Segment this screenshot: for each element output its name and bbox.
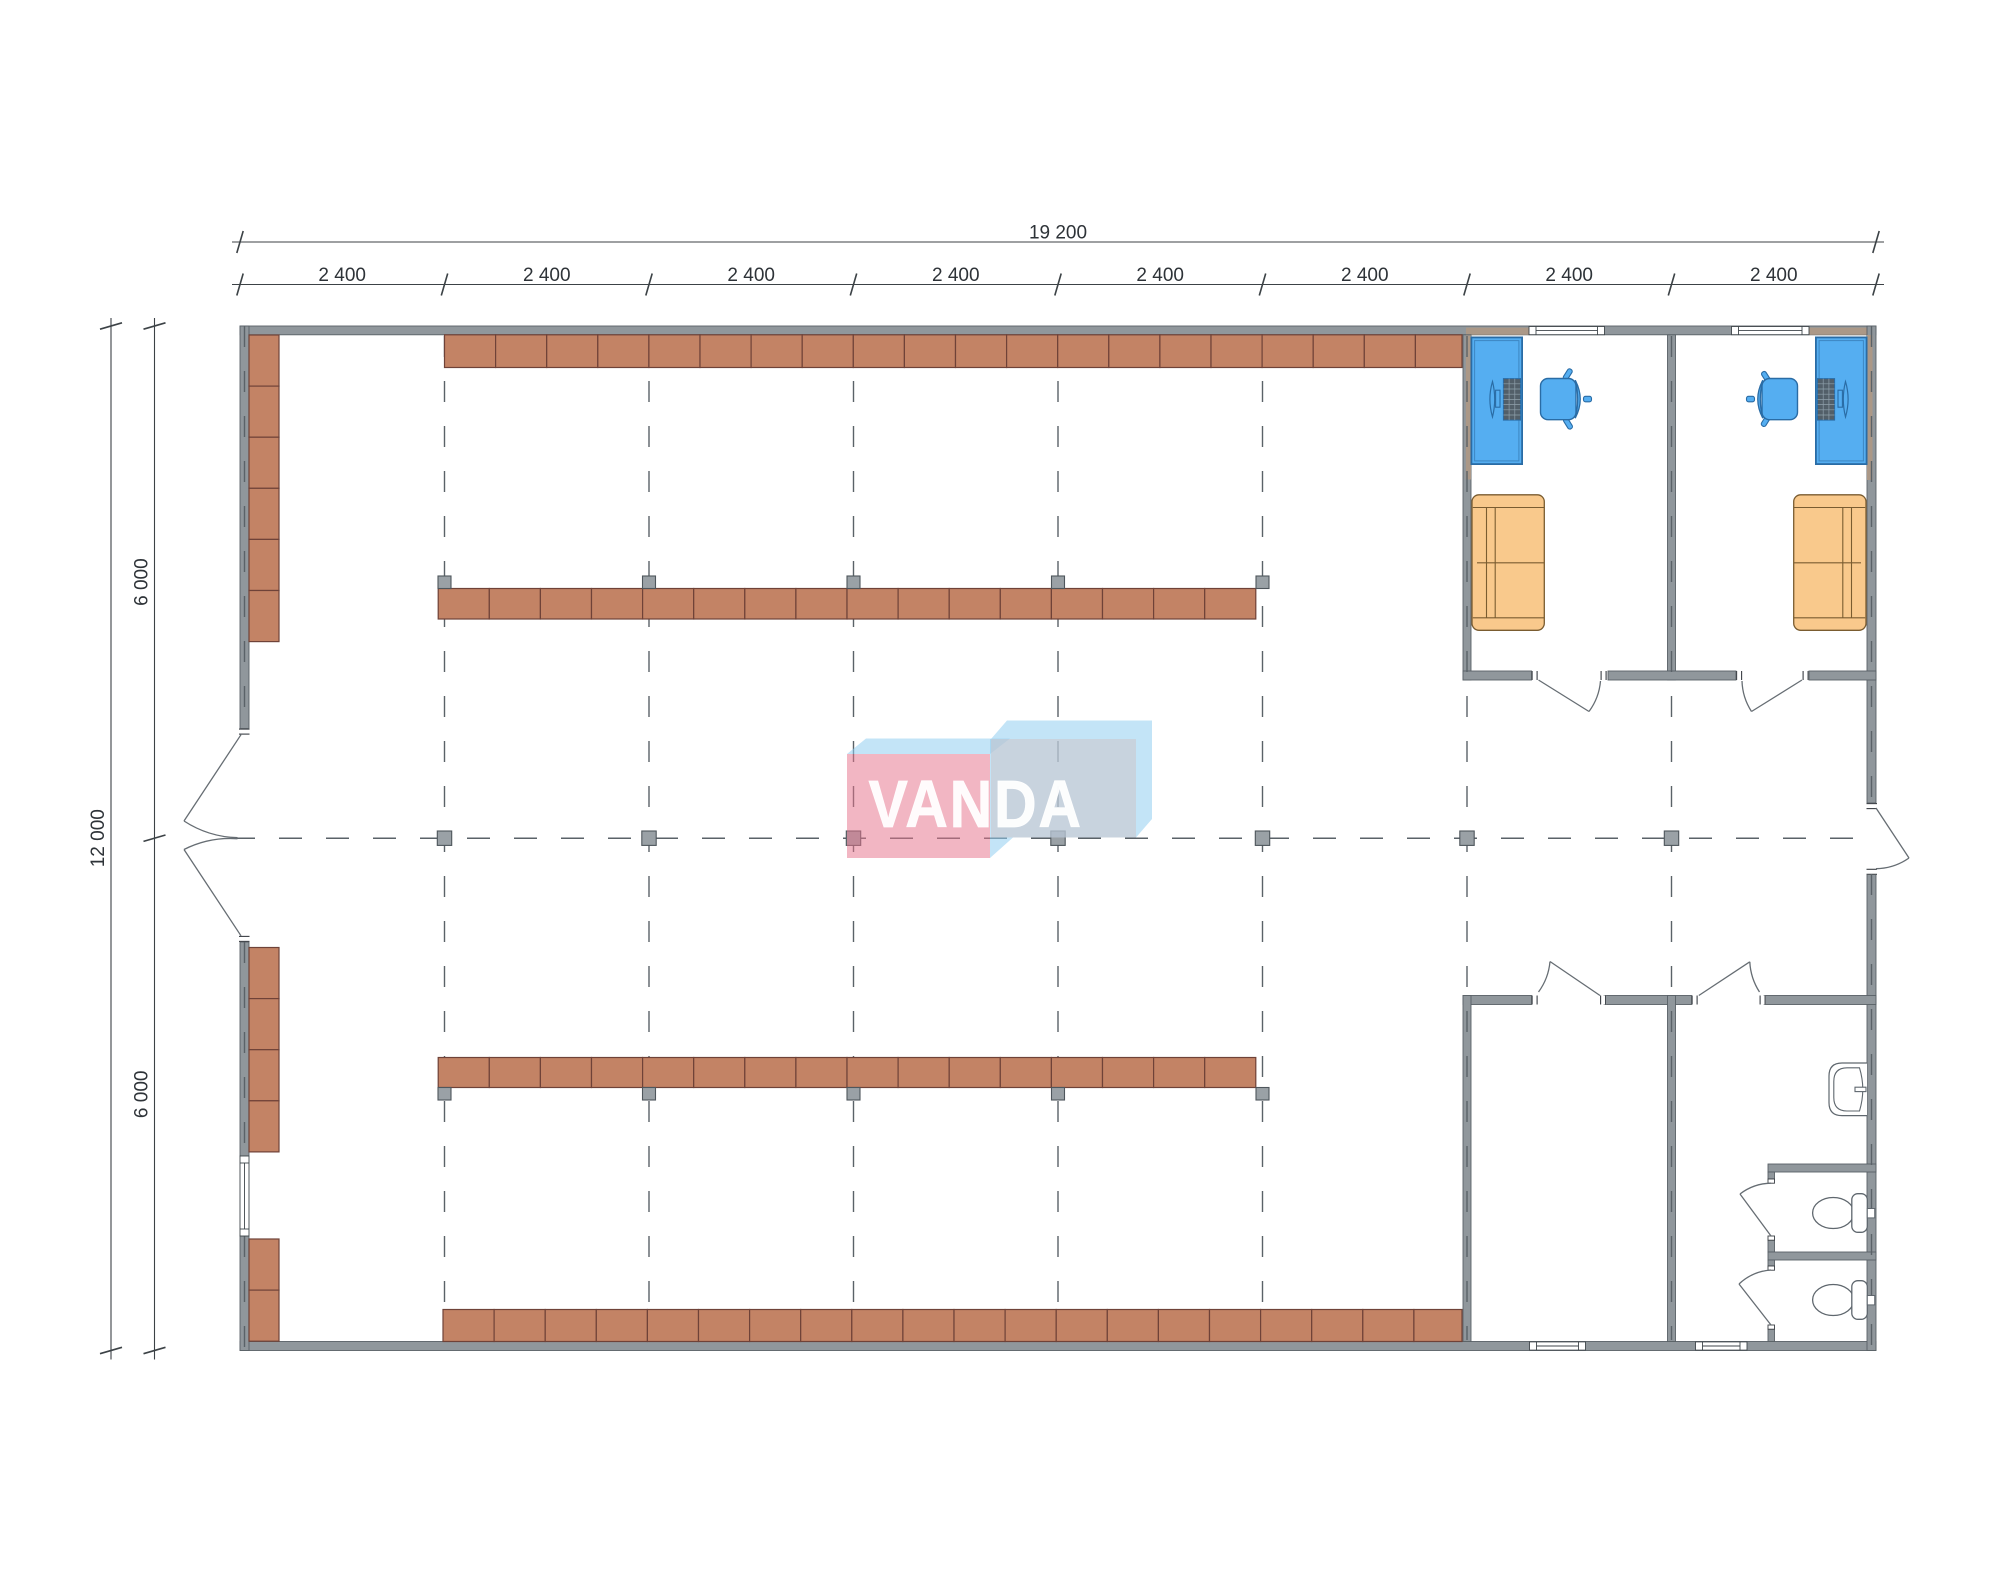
svg-text:6 000: 6 000 (132, 1071, 153, 1119)
svg-text:2 400: 2 400 (523, 265, 571, 286)
svg-text:6 000: 6 000 (132, 558, 153, 606)
svg-text:2 400: 2 400 (1341, 265, 1389, 286)
svg-text:2 400: 2 400 (1545, 265, 1593, 286)
svg-text:2 400: 2 400 (727, 265, 775, 286)
svg-text:2 400: 2 400 (932, 265, 980, 286)
svg-text:VANDA: VANDA (868, 768, 1082, 842)
svg-text:19 200: 19 200 (1029, 223, 1087, 244)
svg-text:2 400: 2 400 (1750, 265, 1798, 286)
svg-text:2 400: 2 400 (1136, 265, 1184, 286)
svg-text:2 400: 2 400 (318, 265, 366, 286)
svg-text:12 000: 12 000 (88, 809, 109, 867)
